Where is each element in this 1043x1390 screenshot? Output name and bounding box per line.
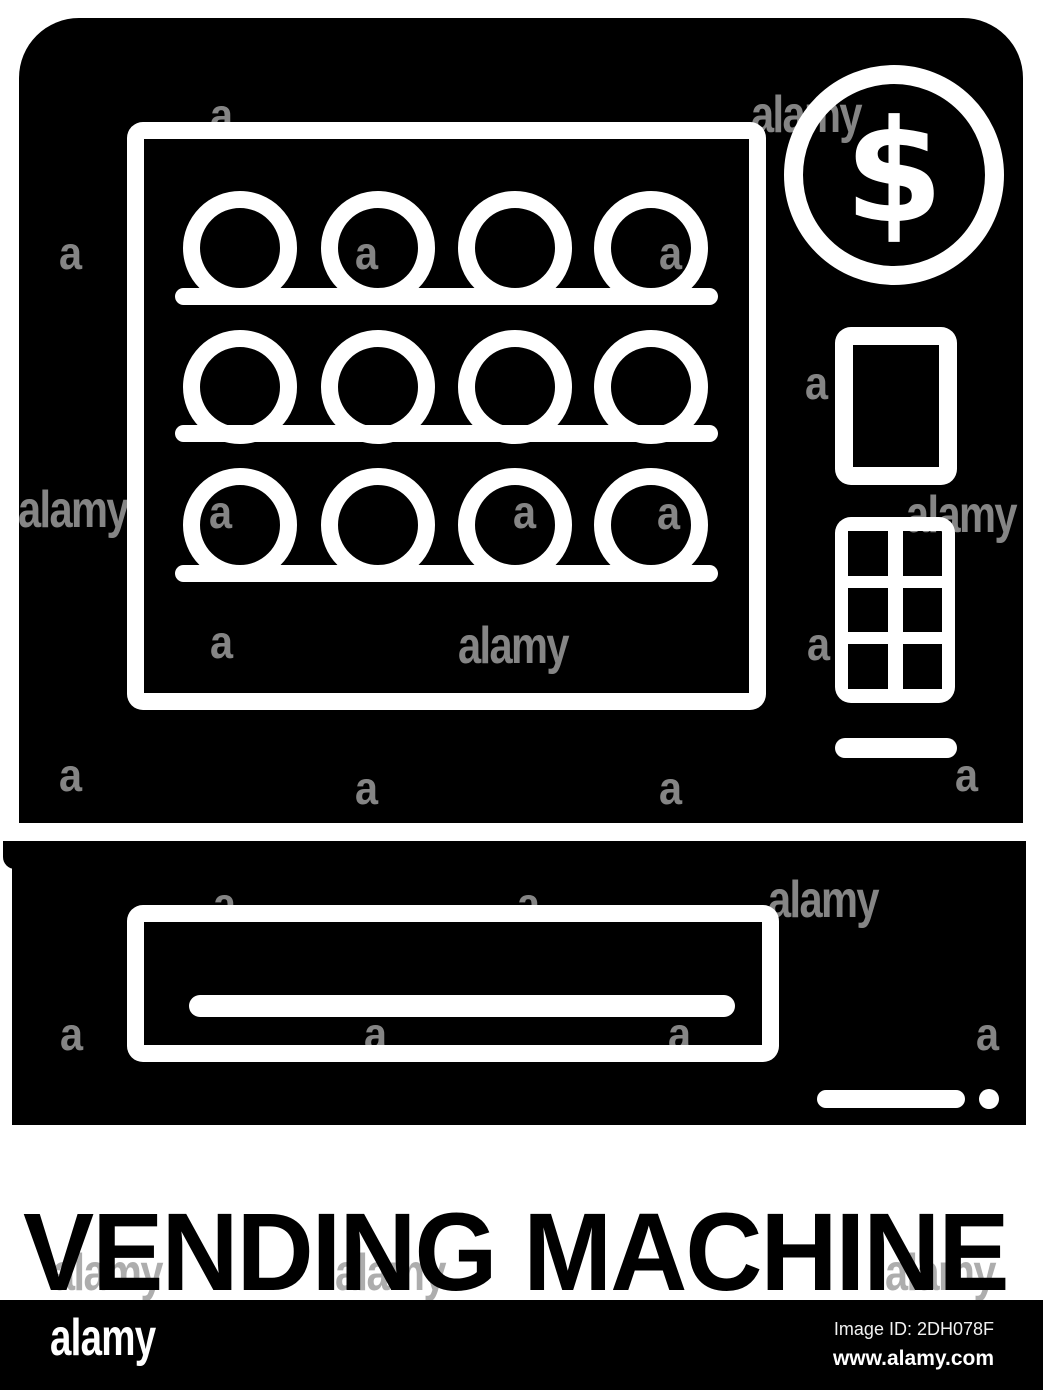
stock-image-page: $ alamyalamyalamyalamyalamyalamyalamyala… [0, 0, 1043, 1390]
dispense-button-icon [835, 738, 957, 758]
image-meta: Image ID: 2DH078F www.alamy.com [833, 1319, 994, 1371]
alamy-url-text: www.alamy.com [833, 1346, 994, 1371]
shelf-line [175, 288, 718, 305]
keypad-key [848, 531, 888, 576]
shelf-line [175, 565, 718, 582]
vending-machine-icon: $ [0, 0, 1043, 1390]
image-id-text: Image ID: 2DH078F [833, 1319, 994, 1341]
dispenser-tray-icon [127, 905, 779, 1062]
keypad-key [903, 588, 943, 633]
keypad-key [848, 644, 888, 689]
tray-slot [189, 995, 735, 1017]
caption-title: VENDING MACHINE [23, 1198, 1008, 1308]
machine-cabinet: $ [19, 18, 1023, 823]
keypad-icon [835, 517, 955, 703]
alamy-logo: alamy [50, 1312, 155, 1364]
keypad-key [903, 644, 943, 689]
coin-return-icon [817, 1090, 965, 1108]
shelf-line [175, 425, 718, 442]
dollar-sign: $ [845, 102, 944, 244]
coin-icon: $ [784, 65, 1004, 285]
card-reader-icon [835, 327, 957, 485]
product-window [127, 122, 766, 710]
footer-bar: alamy Image ID: 2DH078F www.alamy.com [0, 1300, 1043, 1390]
dot-icon [979, 1089, 999, 1109]
keypad-key [903, 531, 943, 576]
keypad-key [848, 588, 888, 633]
machine-base [12, 841, 1026, 1125]
